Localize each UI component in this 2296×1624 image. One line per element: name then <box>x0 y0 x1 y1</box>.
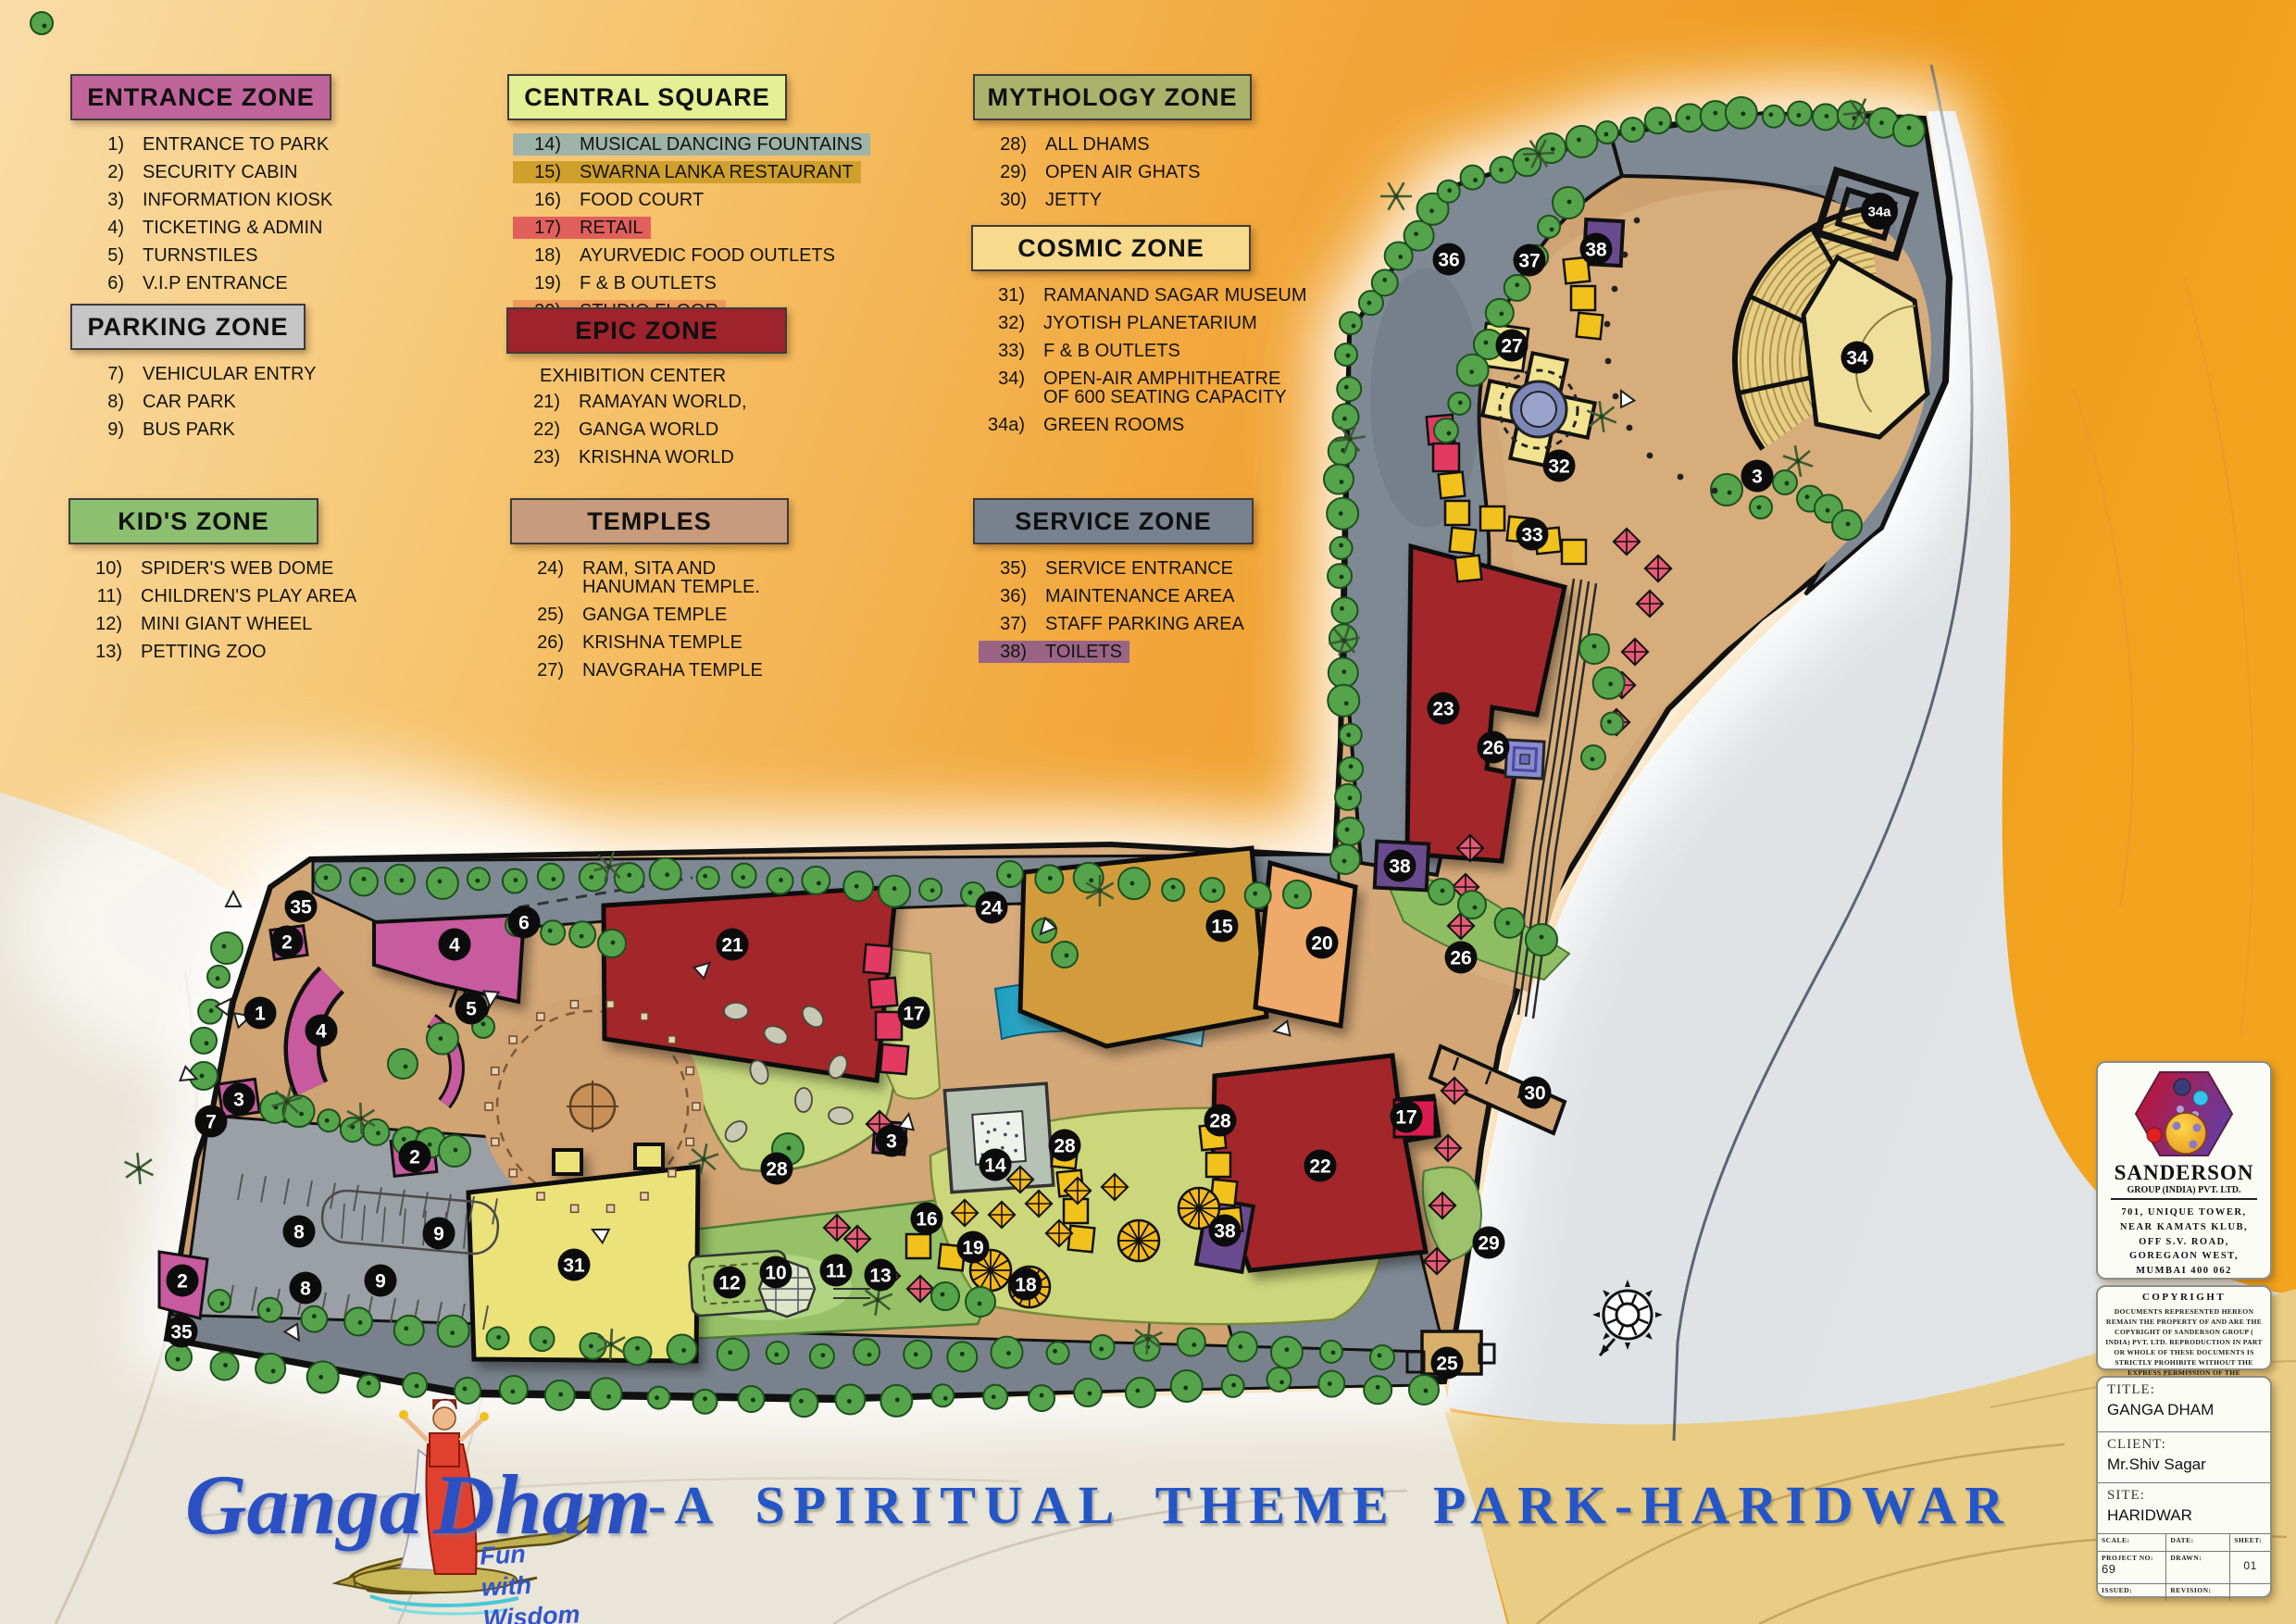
map-marker-30: 30 <box>1519 1077 1552 1109</box>
svg-text:29: 29 <box>1478 1233 1499 1255</box>
company-address: 701, UNIQUE TOWER, NEAR KAMATS KLUB, OFF… <box>2098 1206 2270 1279</box>
legend-item: 1)ENTRANCE TO PARK <box>76 133 336 156</box>
map-marker-10: 10 <box>760 1256 792 1289</box>
legend-header: COSMIC ZONE <box>971 225 1251 271</box>
svg-text:25: 25 <box>1436 1354 1458 1375</box>
legend-item: 4)TICKETING & ADMIN <box>76 217 330 239</box>
svg-text:12: 12 <box>718 1273 740 1294</box>
map-marker-35: 35 <box>285 891 318 923</box>
map-marker-3: 3 <box>223 1083 256 1116</box>
legend-item: 32)JYOTISH PLANETARIUM <box>977 312 1265 334</box>
titleblock-grid: SCALE: DATE: SHEET: PROJECT NO: 69 DRAWN… <box>2098 1534 2270 1601</box>
legend-item: 8)CAR PARK <box>76 391 243 413</box>
banner-title-ganga: Ganga <box>185 1455 422 1554</box>
svg-text:3: 3 <box>1752 467 1763 488</box>
legend-item: 38)TOILETS <box>979 641 1129 663</box>
banner-tagline: Fun with Wisdom <box>479 1536 580 1624</box>
legend-item: 6)V.I.P ENTRANCE <box>76 272 295 294</box>
svg-text:19: 19 <box>962 1238 983 1259</box>
legend-item: 14)MUSICAL DANCING FOUNTAINS <box>513 133 870 156</box>
legend-item: 2)SECURITY CABIN <box>76 161 305 183</box>
legend-item: 28)ALL DHAMS <box>979 133 1157 156</box>
legend-item: 31)RAMANAND SAGAR MUSEUM <box>977 284 1314 306</box>
svg-text:35: 35 <box>170 1322 193 1343</box>
legend-epic-zone: EPIC ZONE EXHIBITION CENTER 21)RAMAYAN W… <box>506 307 787 474</box>
map-marker-13: 13 <box>865 1259 897 1292</box>
map-marker-34a: 34a <box>1861 193 1898 230</box>
legend-temples: TEMPLES 24)RAM, SITA AND HANUMAN TEMPLE.… <box>510 498 789 687</box>
legend-header: PARKING ZONE <box>70 304 306 350</box>
svg-text:2: 2 <box>177 1271 188 1293</box>
legend-header: TEMPLES <box>510 498 789 544</box>
map-marker-2: 2 <box>167 1265 199 1297</box>
map-marker-26: 26 <box>1478 731 1510 764</box>
map-marker-28: 28 <box>1049 1130 1081 1162</box>
legend-item: 10)SPIDER'S WEB DOME <box>74 557 341 580</box>
map-marker-5: 5 <box>455 993 488 1025</box>
map-marker-17: 17 <box>898 997 930 1030</box>
legend-item: 36)MAINTENANCE AREA <box>979 585 1242 607</box>
legend-item: 18)AYURVEDIC FOOD OUTLETS <box>513 244 842 267</box>
svg-text:26: 26 <box>1450 948 1471 969</box>
svg-text:5: 5 <box>466 999 477 1020</box>
copyright-block: COPYRIGHT DOCUMENTS REPRESENTED HEREON R… <box>2096 1285 2272 1370</box>
svg-text:17: 17 <box>903 1004 924 1025</box>
map-marker-28: 28 <box>1204 1105 1237 1137</box>
svg-text:4: 4 <box>449 935 460 956</box>
svg-text:3: 3 <box>233 1090 244 1111</box>
titleblock-title: TITLE: GANGA DHAM <box>2098 1378 2270 1432</box>
titleblock-site: SITE: HARIDWAR <box>2098 1483 2270 1534</box>
svg-text:9: 9 <box>433 1224 444 1245</box>
legend-item: 21)RAMAYAN WORLD, <box>512 391 755 413</box>
map-marker-24: 24 <box>976 892 1008 924</box>
map-marker-2: 2 <box>399 1141 431 1173</box>
svg-text:35: 35 <box>290 897 312 918</box>
legend-item: 24)RAM, SITA AND HANUMAN TEMPLE. <box>516 557 767 598</box>
svg-text:4: 4 <box>316 1021 327 1043</box>
legend-item: 11)CHILDREN'S PLAY AREA <box>74 585 364 607</box>
legend-central-square: CENTRAL SQUARE 14)MUSICAL DANCING FOUNTA… <box>507 74 787 328</box>
krishna-temple <box>1505 740 1544 779</box>
legend-item: 22)GANGA WORLD <box>512 418 726 441</box>
legend-header: SERVICE ZONE <box>973 498 1254 544</box>
legend-item: 27)NAVGRAHA TEMPLE <box>516 659 770 681</box>
map-marker-22: 22 <box>1304 1150 1337 1182</box>
map-marker-21: 21 <box>717 929 749 961</box>
map-marker-29: 29 <box>1473 1227 1505 1259</box>
map-marker-36: 36 <box>1433 244 1466 276</box>
svg-text:36: 36 <box>1438 250 1459 271</box>
map-marker-8: 8 <box>283 1216 316 1248</box>
svg-text:38: 38 <box>1585 240 1607 261</box>
svg-text:31: 31 <box>563 1255 585 1277</box>
legend-item: 37)STAFF PARKING AREA <box>979 613 1252 635</box>
svg-text:7: 7 <box>206 1112 217 1133</box>
map-marker-32: 32 <box>1543 450 1576 482</box>
svg-text:38: 38 <box>1214 1221 1236 1243</box>
legend-item: 3)INFORMATION KIOSK <box>76 189 340 211</box>
svg-text:34a: 34a <box>1867 205 1891 220</box>
map-marker-38: 38 <box>1580 233 1613 266</box>
sanderson-hexagon-logo <box>2134 1068 2234 1159</box>
map-marker-9: 9 <box>365 1265 397 1297</box>
map-marker-23: 23 <box>1428 693 1460 725</box>
map-marker-35: 35 <box>166 1316 198 1348</box>
legend-item: 19)F & B OUTLETS <box>513 272 724 294</box>
legend-item: 13)PETTING ZOO <box>74 641 274 663</box>
map-marker-2: 2 <box>271 926 304 958</box>
map-marker-7: 7 <box>195 1106 228 1138</box>
map-marker-4: 4 <box>439 929 471 961</box>
map-marker-38: 38 <box>1384 850 1416 882</box>
legend-item: 9)BUS PARK <box>76 418 243 441</box>
map-marker-16: 16 <box>911 1203 943 1235</box>
map-marker-15: 15 <box>1206 910 1239 943</box>
map-marker-17: 17 <box>1391 1101 1423 1133</box>
legend-item: 7)VEHICULAR ENTRY <box>76 363 323 385</box>
legend-mythology-zone: MYTHOLOGY ZONE 28)ALL DHAMS 29)OPEN AIR … <box>973 74 1252 217</box>
copyright-title: COPYRIGHT <box>2105 1292 2263 1303</box>
legend-cosmic-zone: COSMIC ZONE 31)RAMANAND SAGAR MUSEUM 32)… <box>971 225 1251 442</box>
map-marker-12: 12 <box>714 1267 746 1299</box>
svg-text:8: 8 <box>300 1279 311 1300</box>
svg-text:38: 38 <box>1389 856 1411 878</box>
map-marker-25: 25 <box>1431 1347 1464 1380</box>
legend-service-zone: SERVICE ZONE 35)SERVICE ENTRANCE 36)MAIN… <box>973 498 1254 668</box>
map-marker-8: 8 <box>290 1272 322 1305</box>
title-block: TITLE: GANGA DHAM CLIENT: Mr.Shiv Sagar … <box>2096 1376 2272 1598</box>
legend-header: ENTRANCE ZONE <box>70 74 331 120</box>
map-marker-26: 26 <box>1445 942 1478 974</box>
legend-item: 34)OPEN-AIR AMPHITHEATRE OF 600 SEATING … <box>977 368 1294 408</box>
company-name: SANDERSON <box>2098 1161 2270 1185</box>
legend-item: 25)GANGA TEMPLE <box>516 604 734 626</box>
legend-item: 30)JETTY <box>979 189 1109 211</box>
theme-park-master-plan: 36373834a3427323332326382624152021352645… <box>0 0 2296 1624</box>
legend-item: 23)KRISHNA WORLD <box>512 446 742 468</box>
legend-header: CENTRAL SQUARE <box>507 74 787 120</box>
svg-text:18: 18 <box>1015 1275 1037 1296</box>
map-marker-37: 37 <box>1514 244 1546 277</box>
legend-item: 17)RETAIL <box>513 217 651 239</box>
map-marker-4: 4 <box>306 1015 338 1047</box>
svg-text:22: 22 <box>1309 1156 1330 1178</box>
svg-text:34: 34 <box>1846 348 1868 369</box>
svg-text:28: 28 <box>1054 1136 1076 1157</box>
legend-entrance-zone: ENTRANCE ZONE 1)ENTRANCE TO PARK 2)SECUR… <box>70 74 331 300</box>
svg-text:9: 9 <box>375 1271 386 1293</box>
svg-text:3: 3 <box>886 1131 897 1153</box>
legend-kids-zone: KID'S ZONE 10)SPIDER'S WEB DOME 11)CHILD… <box>69 498 318 668</box>
legend-item: EXHIBITION CENTER <box>512 367 787 385</box>
map-marker-31: 31 <box>558 1249 591 1281</box>
svg-text:24: 24 <box>980 898 1003 919</box>
map-marker-38: 38 <box>1209 1215 1242 1247</box>
svg-text:17: 17 <box>1395 1107 1416 1129</box>
legend-parking-zone: PARKING ZONE 7)VEHICULAR ENTRY 8)CAR PAR… <box>70 304 306 446</box>
legend-item: 33)F & B OUTLETS <box>977 340 1188 362</box>
titleblock-client: CLIENT: Mr.Shiv Sagar <box>2098 1432 2270 1483</box>
map-marker-20: 20 <box>1306 927 1339 959</box>
map-marker-19: 19 <box>957 1231 990 1264</box>
map-marker-28: 28 <box>761 1153 793 1185</box>
legend-item: 12)MINI GIANT WHEEL <box>74 613 319 635</box>
map-marker-3: 3 <box>876 1125 908 1157</box>
legend-header: MYTHOLOGY ZONE <box>973 74 1252 120</box>
svg-text:30: 30 <box>1524 1083 1545 1105</box>
map-marker-1: 1 <box>244 997 277 1030</box>
legend-item: 35)SERVICE ENTRANCE <box>979 557 1241 580</box>
map-marker-33: 33 <box>1516 518 1549 551</box>
svg-text:6: 6 <box>518 913 530 934</box>
svg-text:10: 10 <box>765 1263 786 1284</box>
company-logo-block: SANDERSON GROUP (INDIA) PVT. LTD. 701, U… <box>2096 1061 2272 1280</box>
map-marker-34: 34 <box>1841 342 1874 374</box>
legend-item: 5)TURNSTILES <box>76 244 265 267</box>
svg-text:28: 28 <box>766 1159 788 1181</box>
svg-text:13: 13 <box>869 1266 891 1287</box>
legend-item: 26)KRISHNA TEMPLE <box>516 631 750 654</box>
map-marker-9: 9 <box>423 1218 455 1250</box>
svg-text:32: 32 <box>1548 456 1569 478</box>
legend-item: 15)SWARNA LANKA RESTAURANT <box>513 161 861 183</box>
svg-text:20: 20 <box>1311 933 1332 955</box>
svg-text:2: 2 <box>281 932 293 954</box>
svg-text:1: 1 <box>255 1004 266 1025</box>
map-marker-11: 11 <box>820 1255 853 1287</box>
banner-subtitle: -A SPIRITUAL THEME PARK-HARIDWAR <box>648 1474 2012 1536</box>
svg-text:33: 33 <box>1521 525 1542 546</box>
legend-item: 34a)GREEN ROOMS <box>977 414 1192 436</box>
svg-text:26: 26 <box>1482 738 1504 759</box>
svg-text:14: 14 <box>984 1156 1006 1177</box>
legend-header: KID'S ZONE <box>69 498 318 544</box>
company-subname: GROUP (INDIA) PVT. LTD. <box>2111 1185 2257 1200</box>
map-marker-3: 3 <box>1741 460 1774 493</box>
legend-item: 16)FOOD COURT <box>513 189 711 211</box>
svg-text:23: 23 <box>1432 699 1454 720</box>
map-marker-6: 6 <box>508 906 541 939</box>
svg-text:2: 2 <box>409 1147 420 1168</box>
svg-text:16: 16 <box>916 1209 937 1230</box>
svg-text:8: 8 <box>293 1222 305 1243</box>
legend-header: EPIC ZONE <box>506 307 787 354</box>
map-marker-14: 14 <box>980 1149 1012 1181</box>
svg-text:27: 27 <box>1501 336 1522 357</box>
map-marker-18: 18 <box>1010 1268 1042 1301</box>
svg-text:21: 21 <box>721 935 743 956</box>
map-marker-27: 27 <box>1496 330 1529 362</box>
svg-text:28: 28 <box>1209 1111 1231 1132</box>
svg-text:11: 11 <box>826 1261 847 1282</box>
svg-text:15: 15 <box>1211 917 1233 938</box>
legend-item: 29)OPEN AIR GHATS <box>979 161 1207 183</box>
svg-text:37: 37 <box>1518 251 1540 272</box>
